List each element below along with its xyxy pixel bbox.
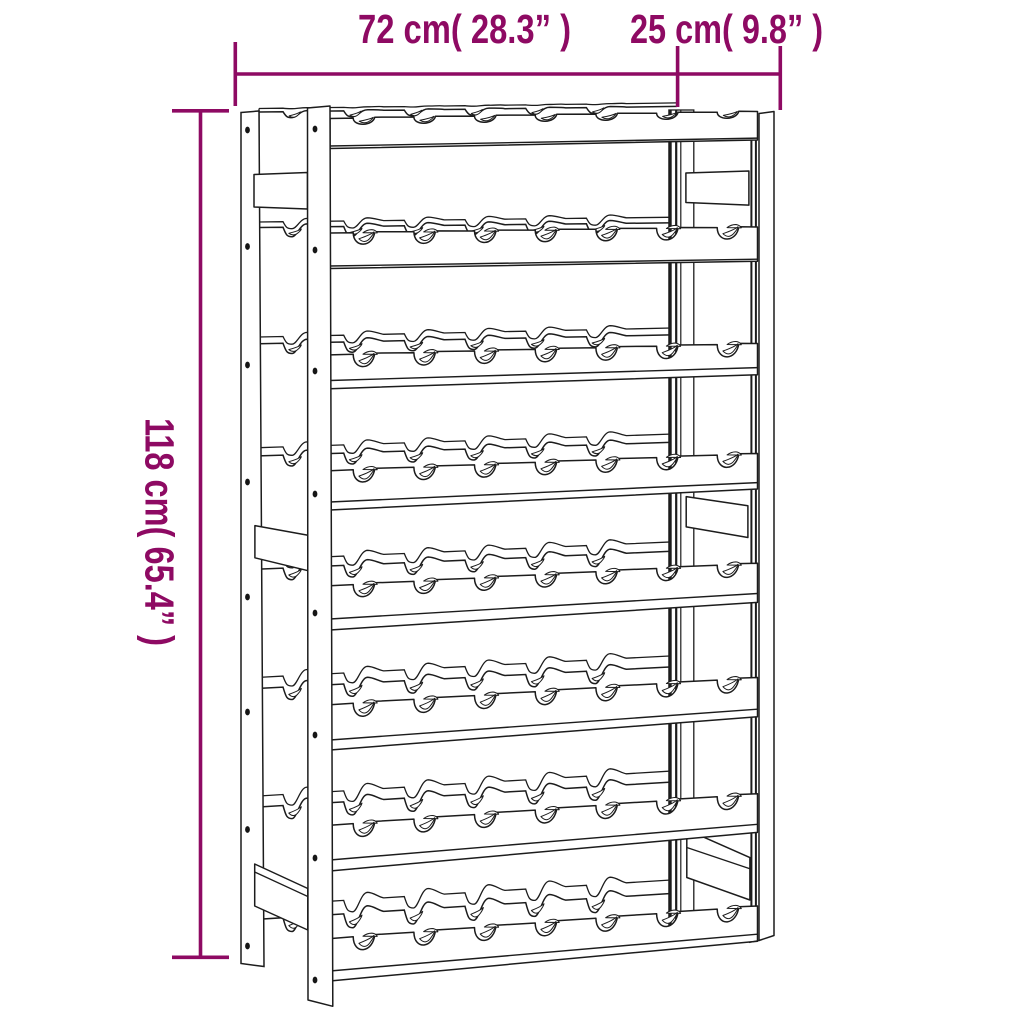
svg-text:118 cm( 65.4” ): 118 cm( 65.4” ) (137, 418, 183, 646)
svg-text:25 cm( 9.8” ): 25 cm( 9.8” ) (630, 6, 823, 52)
svg-text:72 cm( 28.3” ): 72 cm( 28.3” ) (358, 6, 571, 52)
